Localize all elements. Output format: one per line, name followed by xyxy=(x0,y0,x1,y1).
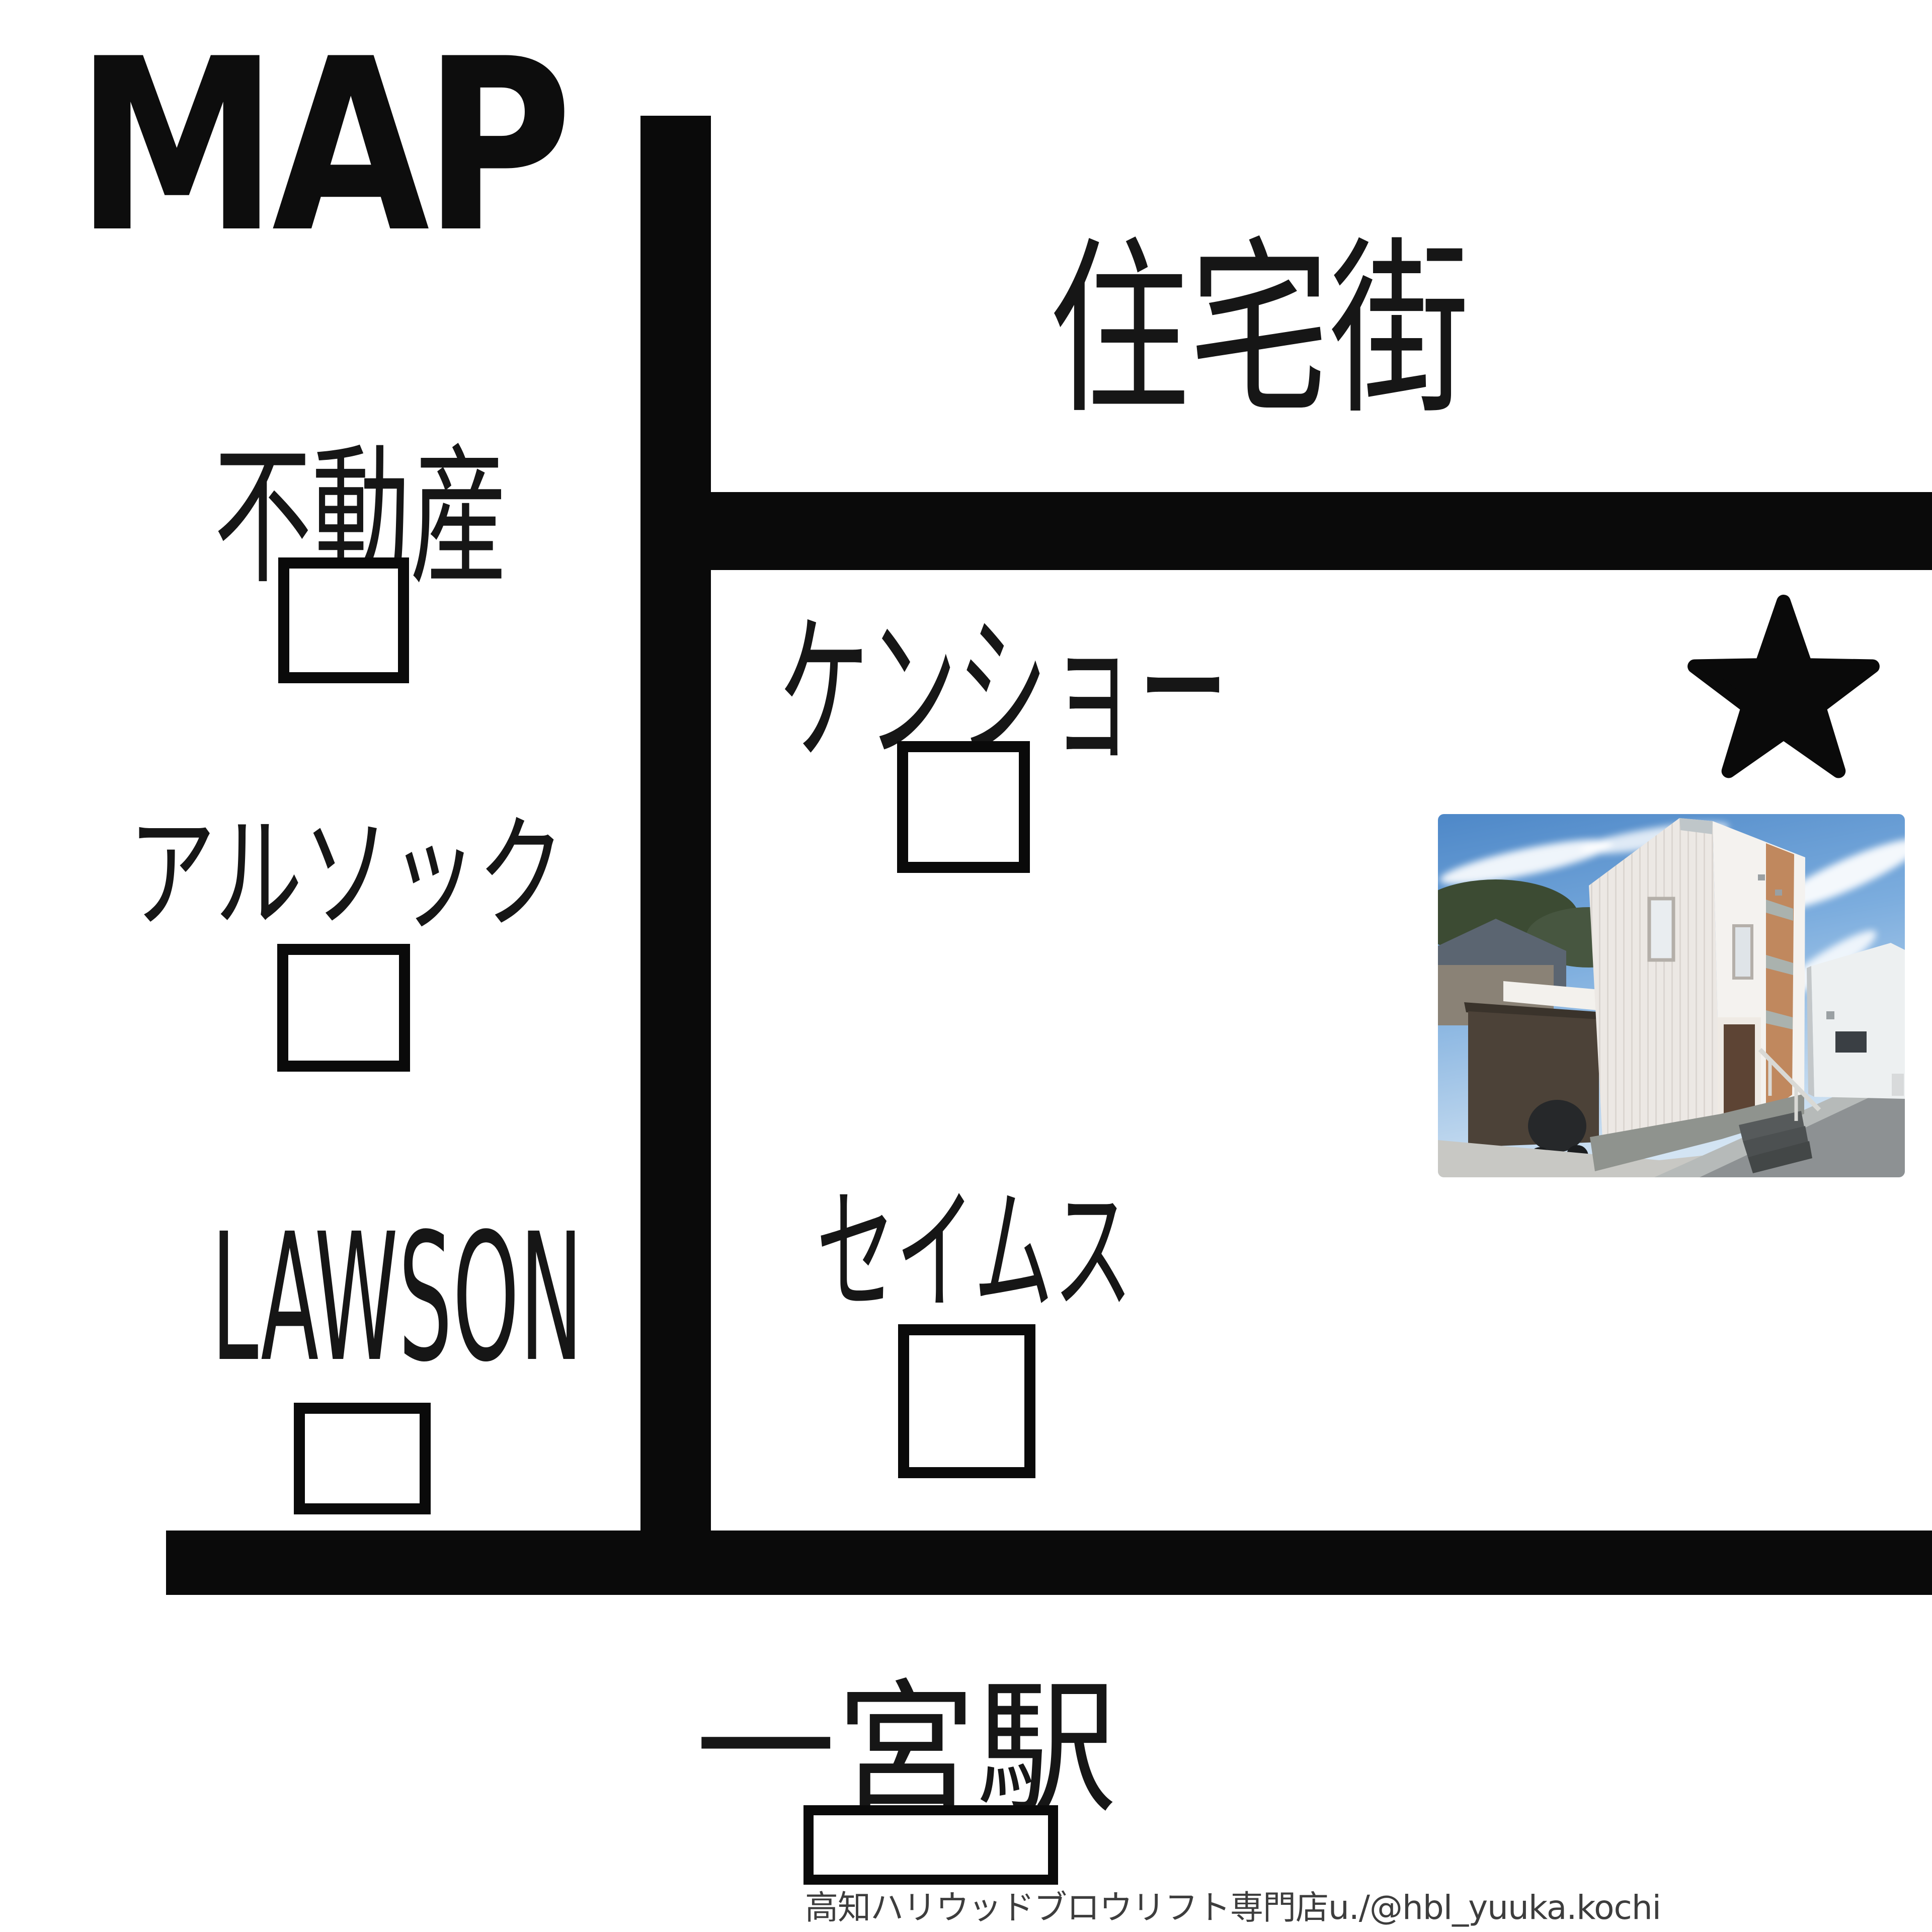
road-horizontal-upper xyxy=(679,492,1932,570)
building-box-station xyxy=(803,1805,1058,1885)
map-title: MAP xyxy=(75,28,567,266)
label-station: 一宮駅 xyxy=(695,1678,1117,1821)
watermark-credit: 高知ハリウッドブロウリフト専門店u./@hbl_yuuka.kochi xyxy=(805,1890,1661,1926)
road-vertical xyxy=(640,116,711,1595)
label-alsok: アルソック xyxy=(128,813,565,937)
hand-drawn-access-map: MAP 住宅街 不動産 アルソック LAWSON ケンショー セイムス 一宮駅 xyxy=(0,0,1932,1932)
shop-photo xyxy=(1438,814,1905,1177)
label-seims: セイムス xyxy=(816,1185,1133,1320)
road-horizontal-bottom xyxy=(166,1531,1932,1595)
shop-photo-illustration xyxy=(1438,814,1905,1177)
building-box-alsok xyxy=(277,944,410,1072)
building-box-kensho xyxy=(897,741,1030,873)
star-icon xyxy=(1680,590,1887,801)
building-box-lawson xyxy=(294,1403,431,1514)
building-box-fudosan xyxy=(278,557,409,683)
label-residential-area: 住宅街 xyxy=(1049,236,1470,425)
label-lawson: LAWSON xyxy=(211,1210,584,1386)
building-box-seims xyxy=(898,1324,1035,1478)
destination-marker xyxy=(1680,590,1887,801)
